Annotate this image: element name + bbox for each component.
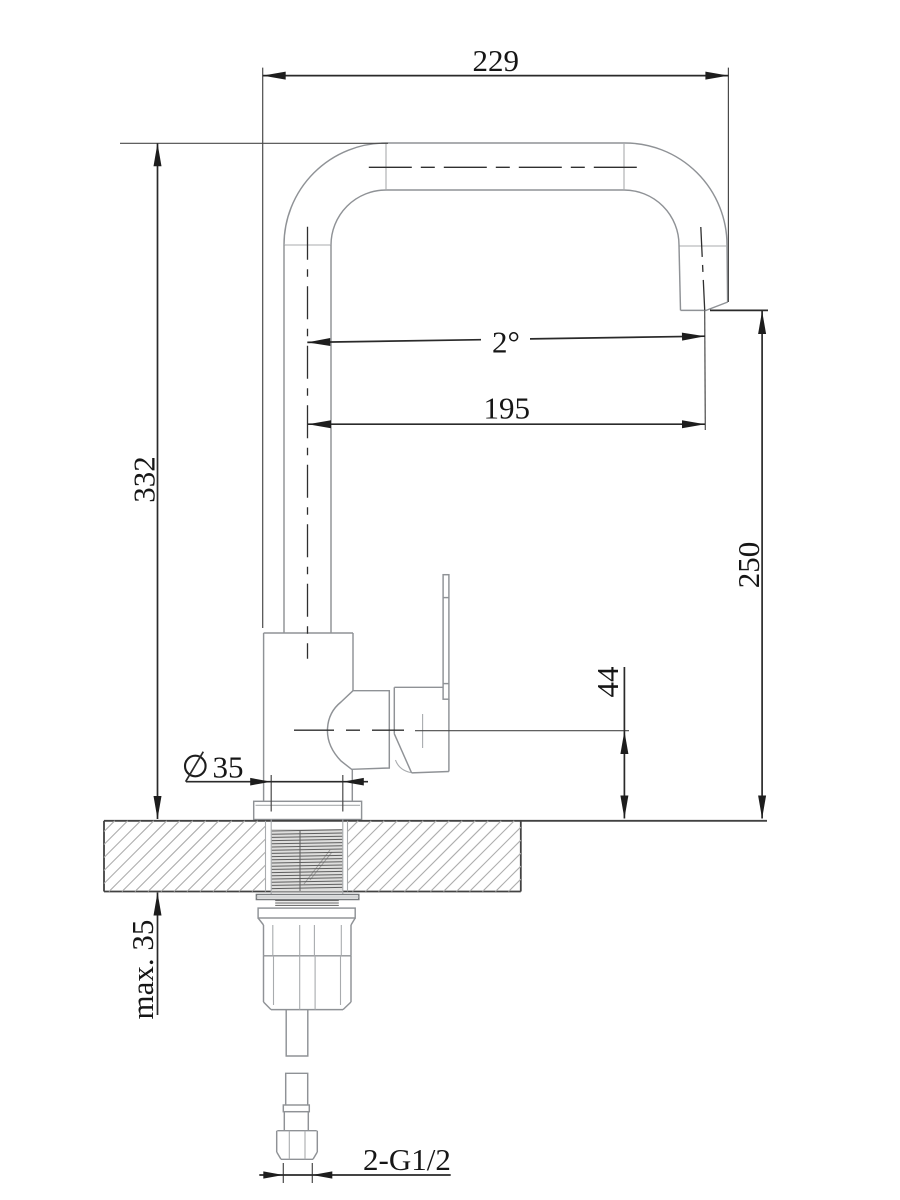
svg-text:332: 332 [127, 456, 162, 503]
svg-text:2°: 2° [492, 325, 520, 360]
svg-text:229: 229 [472, 43, 519, 78]
svg-text:195: 195 [483, 390, 530, 425]
svg-text:35: 35 [213, 750, 244, 785]
svg-text:2-G1/2: 2-G1/2 [363, 1142, 451, 1177]
svg-text:max. 35: max. 35 [125, 920, 160, 1020]
svg-text:250: 250 [731, 542, 766, 589]
svg-text:44: 44 [590, 666, 625, 698]
